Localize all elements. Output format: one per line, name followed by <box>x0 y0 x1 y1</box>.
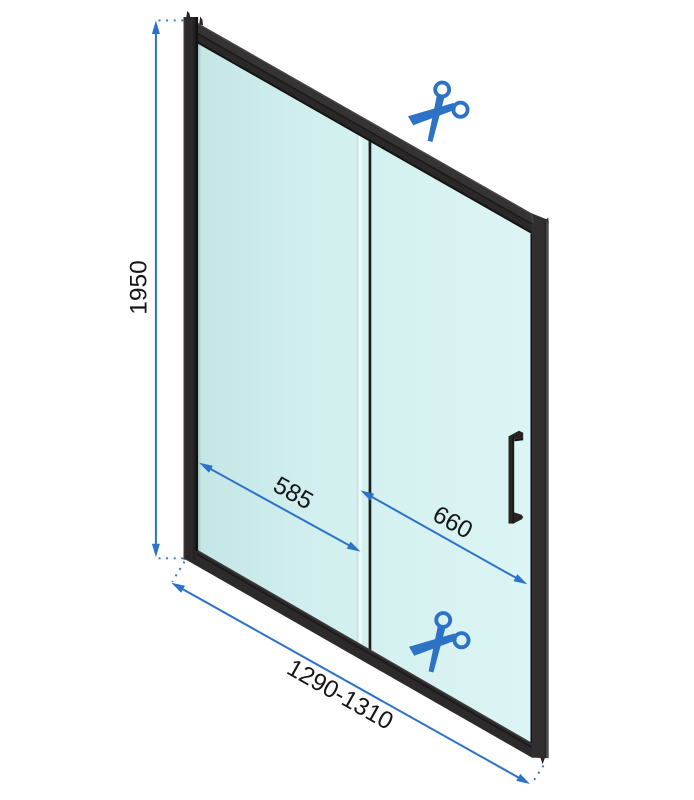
svg-text:1950: 1950 <box>126 260 153 315</box>
